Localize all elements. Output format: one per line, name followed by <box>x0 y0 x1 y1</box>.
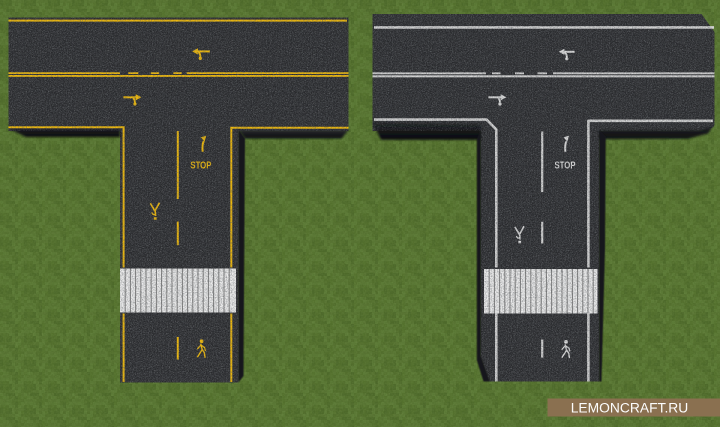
svg-text:LEMONCRAFT.RU: LEMONCRAFT.RU <box>571 401 689 416</box>
